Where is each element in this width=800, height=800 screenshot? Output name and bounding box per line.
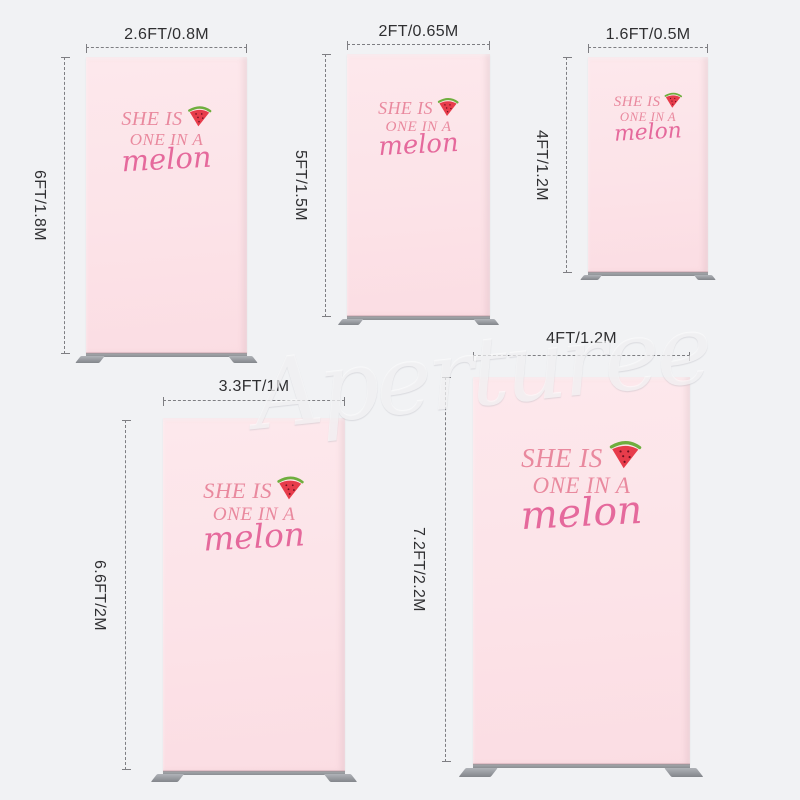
stand-base-bar	[347, 316, 490, 320]
height-dimension-line	[445, 377, 446, 762]
stand-foot-left	[337, 319, 363, 325]
watermelon-slice-icon	[605, 436, 644, 473]
height-dimension-label: 6.6FT/2M	[87, 420, 111, 770]
stand-foot-left	[151, 774, 184, 782]
artwork-line1: SHE IS	[121, 109, 182, 129]
stand-foot-right	[473, 319, 499, 325]
width-dimension-label: 1.6FT/0.5M	[588, 26, 708, 44]
stand-foot-right	[665, 768, 705, 777]
artwork-line1: SHE IS	[521, 445, 603, 472]
watermelon-slice-icon	[434, 94, 460, 118]
stand-base-bar	[86, 353, 247, 357]
width-dimension-line	[473, 355, 690, 356]
backdrop-artwork: SHE IS ONE IN A melon	[86, 109, 247, 174]
backdrop-artwork: SHE IS ONE IN A melon	[473, 445, 690, 532]
stand-foot-left	[580, 275, 602, 280]
height-dimension-line	[125, 420, 126, 770]
backdrop-panel: SHE IS ONE IN A melon	[588, 57, 708, 273]
width-dimension-label: 4FT/1.2M	[473, 330, 690, 348]
artwork-line1: SHE IS	[378, 100, 433, 118]
watermelon-slice-icon	[184, 102, 213, 129]
width-dimension-line	[588, 47, 708, 48]
backdrop-panel: SHE IS ONE IN A melon	[347, 54, 490, 317]
backdrop-artwork: SHE IS ONE IN A melon	[588, 95, 708, 143]
height-dimension-line	[325, 54, 326, 317]
height-dimension-label: 5FT/1.5M	[289, 54, 311, 317]
backdrop-artwork: SHE IS ONE IN A melon	[163, 480, 345, 553]
backdrop-artwork: SHE IS ONE IN A melon	[347, 100, 490, 157]
watermelon-slice-icon	[274, 472, 307, 503]
artwork-line1: SHE IS	[614, 95, 661, 110]
stand-base-bar	[473, 764, 690, 768]
height-dimension-label: 6FT/1.8M	[28, 57, 50, 354]
width-dimension-line	[86, 47, 247, 48]
width-dimension-label: 3.3FT/1M	[163, 378, 345, 396]
height-dimension-label: 4FT/1.2M	[530, 57, 552, 273]
width-dimension-label: 2FT/0.65M	[347, 23, 490, 41]
height-dimension-label: 7.2FT/2.2M	[406, 377, 430, 762]
width-dimension-line	[347, 44, 490, 45]
stand-foot-left	[75, 356, 104, 363]
stand-foot-left	[459, 768, 499, 777]
stand-base-bar	[163, 771, 345, 775]
backdrop-panel: SHE IS ONE IN A melon	[163, 418, 345, 772]
artwork-line1: SHE IS	[203, 480, 272, 503]
height-dimension-line	[64, 57, 65, 354]
width-dimension-label: 2.6FT/0.8M	[86, 26, 247, 44]
width-dimension-line	[163, 400, 345, 401]
backdrop-panel: SHE IS ONE IN A melon	[86, 57, 247, 354]
watermelon-slice-icon	[662, 90, 684, 111]
stand-foot-right	[324, 774, 357, 782]
stand-foot-right	[228, 356, 257, 363]
stand-foot-right	[694, 275, 716, 280]
size-chart: 2.6FT/0.8M 6FT/1.8M SHE IS ONE IN A melo…	[0, 0, 800, 800]
backdrop-panel: SHE IS ONE IN A melon	[473, 377, 690, 765]
stand-base-bar	[588, 272, 708, 276]
height-dimension-line	[566, 57, 567, 273]
